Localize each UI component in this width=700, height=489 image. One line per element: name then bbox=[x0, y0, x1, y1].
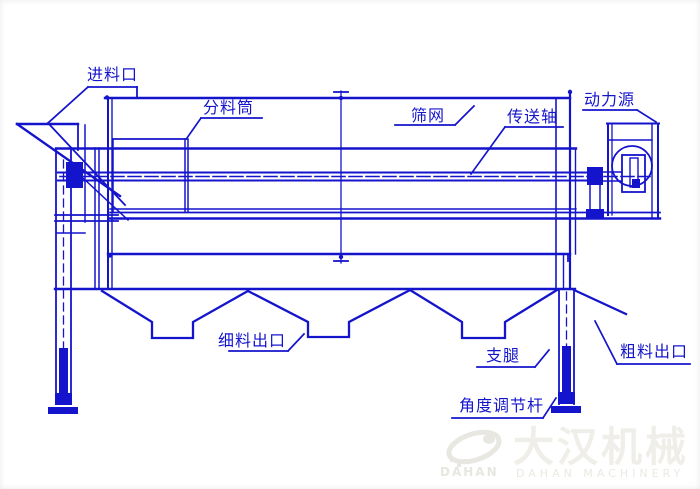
label-feed-inlet: 进料口 bbox=[87, 65, 138, 84]
label-fine-material-outlet: 细料出口 bbox=[218, 331, 286, 350]
label-angle-adjustment-rod: 角度调节杆 bbox=[459, 396, 544, 415]
watermark-logo-dot bbox=[483, 434, 495, 444]
right-support-leg bbox=[551, 290, 581, 413]
right-leg-jack bbox=[562, 346, 571, 394]
label-support-leg: 支腿 bbox=[486, 346, 520, 365]
annotation-power-source: 动力源 bbox=[583, 90, 656, 122]
label-power-source: 动力源 bbox=[584, 90, 635, 109]
watermark-logo-text: DAHAN bbox=[440, 465, 499, 479]
annotation-transmission-shaft: 传送轴 bbox=[471, 107, 563, 174]
trommel-screen-diagram: DAHAN 大汉机械 DAHAN MACHINERY bbox=[0, 0, 700, 489]
annotation-coarse-material-outlet: 粗料出口 bbox=[595, 321, 690, 364]
label-coarse-material-outlet: 粗料出口 bbox=[620, 342, 688, 361]
watermark-dot bbox=[464, 459, 467, 462]
left-support-leg bbox=[48, 150, 78, 414]
shaft-coupling bbox=[587, 167, 603, 185]
discharge-hoppers bbox=[102, 290, 557, 338]
hopper-2 bbox=[248, 290, 410, 337]
hopper-3 bbox=[410, 290, 557, 338]
distribution-cylinder-box bbox=[113, 139, 188, 212]
left-leg-jack bbox=[59, 348, 68, 396]
label-distribution-cylinder: 分料筒 bbox=[203, 98, 254, 117]
annotation-distribution-cylinder: 分料筒 bbox=[187, 98, 262, 138]
right-leg-foot bbox=[551, 406, 581, 413]
diagram-svg: DAHAN 大汉机械 DAHAN MACHINERY bbox=[0, 0, 700, 489]
label-screen-mesh: 筛网 bbox=[411, 106, 445, 125]
annotation-support-leg: 支腿 bbox=[477, 346, 549, 367]
motor-assembly bbox=[586, 124, 659, 219]
transmission-shaft-lines bbox=[58, 173, 650, 181]
annotation-feed-inlet: 进料口 bbox=[48, 65, 138, 123]
annotation-screen-mesh: 筛网 bbox=[395, 106, 474, 125]
annotation-fine-material-outlet: 细料出口 bbox=[218, 331, 304, 351]
top-frame-rail bbox=[105, 87, 572, 100]
left-leg-foot bbox=[48, 407, 78, 414]
watermark-cn-text: 大汉机械 bbox=[513, 423, 689, 471]
coarse-discharge-chute bbox=[574, 290, 626, 314]
annotation-angle-adjustment-rod: 角度调节杆 bbox=[452, 396, 556, 418]
screen-drum-housing bbox=[55, 91, 660, 289]
watermark: DAHAN 大汉机械 DAHAN MACHINERY bbox=[440, 423, 689, 480]
label-transmission-shaft: 传送轴 bbox=[507, 107, 558, 126]
left-bearing-block bbox=[66, 162, 83, 188]
watermark-dot bbox=[450, 458, 454, 462]
watermark-en-text: DAHAN MACHINERY bbox=[516, 467, 684, 480]
